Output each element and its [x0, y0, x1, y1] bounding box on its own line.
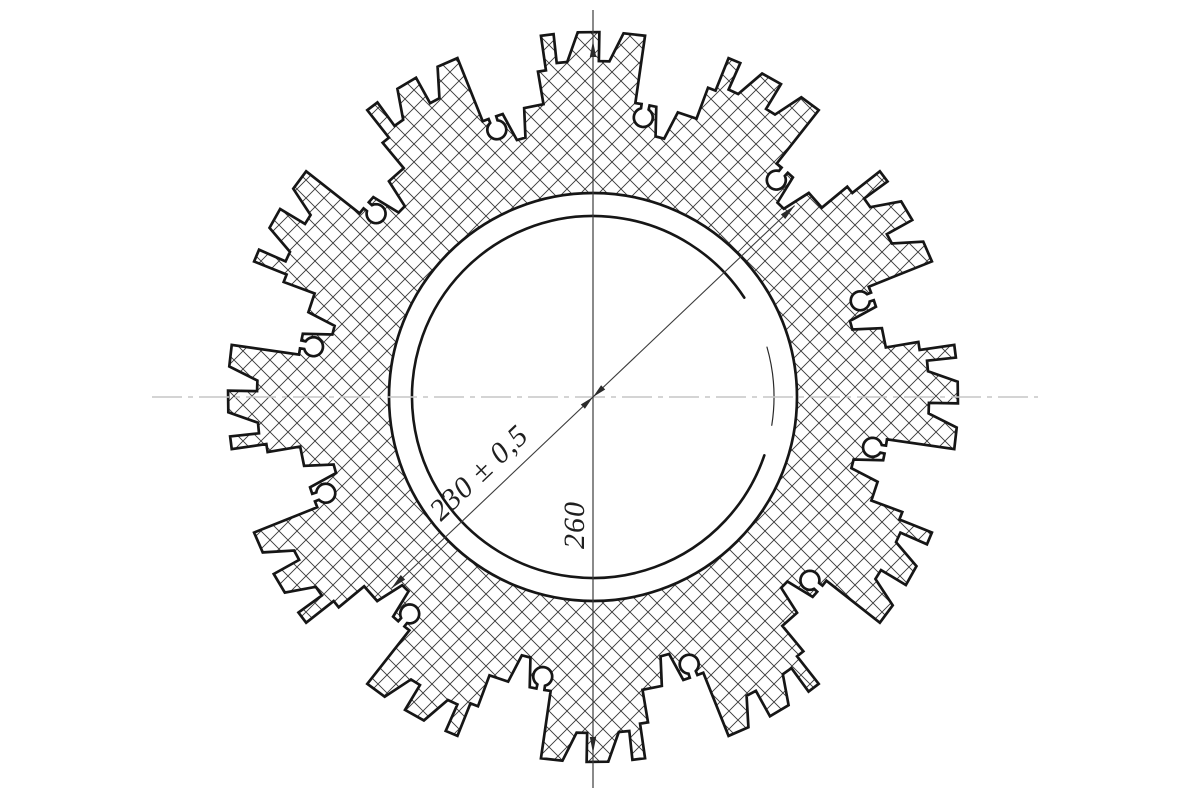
drawing-canvas: 230 ± 0,5 260 — [0, 0, 1200, 800]
diagonal-dimension-label: 230 ± 0,5 — [423, 418, 535, 527]
circle-230-break-arc — [767, 347, 774, 425]
engineering-drawing: 230 ± 0,5 260 — [0, 0, 1200, 800]
vertical-dimension-label: 260 — [558, 501, 591, 549]
